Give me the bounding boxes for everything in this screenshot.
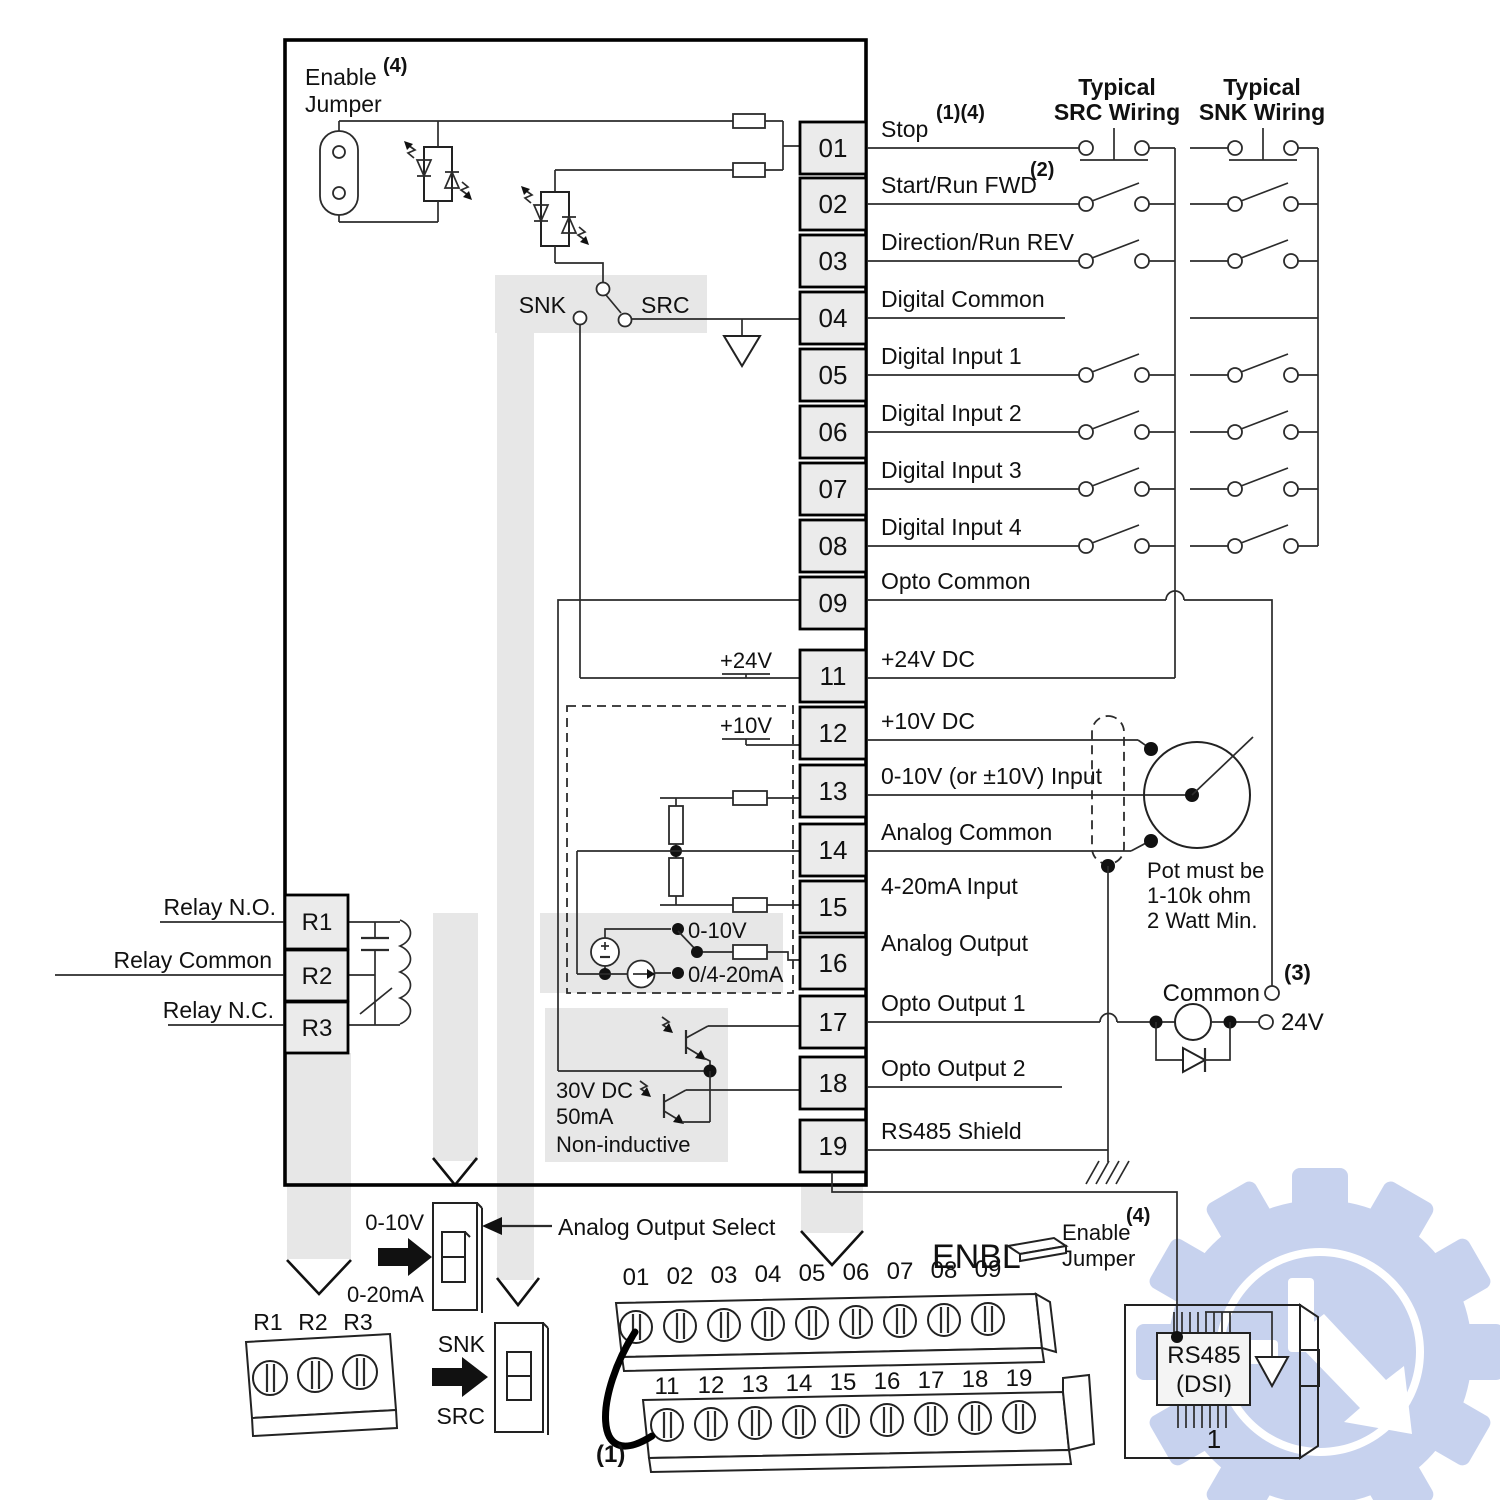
footnote-ref: (4) [383, 55, 407, 77]
opto-spec-line1: 30V DC [556, 1078, 633, 1103]
resistor-icon [669, 858, 683, 896]
terminal-number: 04 [819, 303, 848, 333]
terminal-label: Digital Input 1 [881, 343, 1022, 369]
terminal-label: Stop [881, 116, 928, 142]
terminal-number: 09 [819, 588, 848, 618]
strip-number: 17 [918, 1367, 945, 1394]
resistor-icon [733, 898, 767, 912]
enbl-jumper-callout: ENBL Enable Jumper (4) [932, 1205, 1150, 1276]
sw-0-10v-label: 0-10V [365, 1210, 424, 1235]
snk-position-label: SNK [519, 292, 567, 318]
24v-terminal-label: 24V [1281, 1009, 1324, 1036]
relay-terminal-r3: R3 [302, 1015, 333, 1042]
resistor-icon [733, 945, 767, 959]
terminal-label: Start/Run FWD [881, 172, 1037, 198]
terminal-labels: Stop (1)(4) Start/Run FWD (2) Direction/… [881, 102, 1103, 1144]
terminal-number: 05 [819, 360, 848, 390]
strip-number: 07 [887, 1258, 914, 1285]
drive-control-wiring-diagram: 01 02 03 04 05 06 07 08 09 11 12 13 14 1… [0, 0, 1500, 1500]
terminal-number: 17 [819, 1007, 848, 1037]
terminal-label: Opto Output 2 [881, 1055, 1025, 1081]
terminal-number: 02 [819, 189, 848, 219]
src-position-label: SRC [641, 292, 690, 318]
load-icon [1175, 1004, 1211, 1040]
terminal-number: 11 [820, 661, 847, 691]
terminal-number: 06 [819, 417, 848, 447]
relay-section: R1 R2 R3 Relay N.O. Relay Common Relay N… [55, 894, 348, 1053]
terminal-label: RS485 Shield [881, 1118, 1022, 1144]
r2-label: R2 [298, 1309, 327, 1335]
src-column-title-line1: Typical [1078, 74, 1156, 100]
src-column-title-line2: SRC Wiring [1054, 99, 1180, 125]
arrow-right-icon [378, 1238, 432, 1276]
strip-number: 19 [1006, 1365, 1033, 1392]
resistor-icon [733, 163, 765, 177]
analog-output-select-label: Analog Output Select [558, 1214, 776, 1240]
terminal-label: +24V DC [881, 646, 975, 672]
snk-column-title-line2: SNK Wiring [1199, 99, 1325, 125]
footnote-ref: (2) [1030, 159, 1054, 181]
terminal-label: +10V DC [881, 708, 975, 734]
strip-number: 11 [655, 1373, 680, 1400]
strip-number: 01 [623, 1264, 650, 1291]
strip-number: 02 [667, 1263, 694, 1290]
terminal-label: Opto Output 1 [881, 990, 1025, 1016]
chevron-down-icon [497, 1278, 539, 1305]
pot-note-line2: 1-10k ohm [1147, 883, 1251, 908]
enable-jumper-label-line1: Enable [305, 64, 377, 90]
r1-label: R1 [253, 1309, 282, 1335]
pot-note-line1: Pot must be [1147, 858, 1264, 883]
pot-note-line3: 2 Watt Min. [1147, 908, 1257, 933]
arrow-left-icon [482, 1217, 502, 1235]
terminal-block-column: 01 02 03 04 05 06 07 08 09 11 12 13 14 1… [800, 122, 866, 1172]
terminal-label: Digital Input 2 [881, 400, 1022, 426]
switch-row-snk [1190, 183, 1318, 553]
footnote-ref: (1)(4) [936, 102, 985, 124]
terminal-label: Digital Input 3 [881, 457, 1022, 483]
select-0-4-20ma-label: 0/4-20mA [688, 962, 784, 987]
optocoupler-icon [521, 170, 589, 263]
terminal-number: 18 [819, 1068, 848, 1098]
footnote-ref: (1) [596, 1441, 625, 1468]
terminal-number: 13 [819, 776, 848, 806]
wiring-diagram-page: 01 02 03 04 05 06 07 08 09 11 12 13 14 1… [0, 0, 1500, 1500]
terminal-label: Analog Output [881, 930, 1029, 956]
strip-number: 14 [786, 1370, 813, 1397]
rs485-label-line1: RS485 [1167, 1342, 1240, 1369]
resistor-icon [669, 806, 683, 844]
shaded-callout-bands [287, 275, 863, 1280]
r3-label: R3 [343, 1309, 372, 1335]
v10-tap-label: +10V [720, 713, 772, 738]
relay-contact-internals [348, 920, 411, 1025]
relay-terminal-block-drawing: R1 R2 R3 [246, 1309, 397, 1436]
terminal-strip-11-19-drawing: 11 12 13 14 15 16 17 18 19 [643, 1365, 1094, 1472]
footnote-ref: (4) [1126, 1205, 1150, 1227]
sw-0-20ma-label: 0-20mA [347, 1282, 424, 1307]
screw-terminal-icon [253, 1355, 377, 1395]
ground-icon [724, 319, 760, 366]
terminal-number: 19 [819, 1131, 848, 1161]
v24-tap-label: +24V [720, 648, 772, 673]
terminal-label: Digital Common [881, 286, 1045, 312]
opto-spec-line2: 50mA [556, 1104, 614, 1129]
voltage-source-icon [591, 938, 619, 966]
arrow-right-icon [432, 1357, 488, 1397]
resistor-icon [733, 114, 765, 128]
stop-pushbutton-snk [1190, 128, 1318, 160]
strip-number: 04 [755, 1261, 782, 1288]
terminal-number: 14 [819, 835, 848, 865]
current-source-icon [628, 961, 656, 988]
rs485-pin-label: 1 [1207, 1424, 1221, 1454]
cable-shield-dashed-icon [1092, 716, 1124, 864]
relay-common-label: Relay Common [114, 947, 273, 973]
enable-label-line1: Enable [1062, 1220, 1131, 1245]
ground-icon [1086, 1161, 1129, 1184]
strip-number: 12 [698, 1372, 725, 1399]
terminal-number: 16 [819, 948, 848, 978]
terminal-number: 12 [819, 718, 848, 748]
chevron-down-icon [287, 1260, 351, 1294]
relay-terminal-r1: R1 [302, 909, 333, 936]
terminal-label: Digital Input 4 [881, 514, 1022, 540]
opto-spec-line3: Non-inductive [556, 1132, 691, 1157]
enbl-label: ENBL [932, 1238, 1021, 1276]
terminal-label: Direction/Run REV [881, 229, 1075, 255]
strip-number: 03 [711, 1262, 738, 1289]
relay-nc-label: Relay N.C. [163, 997, 274, 1023]
terminal-number: 03 [819, 246, 848, 276]
terminal-number: 07 [819, 474, 848, 504]
snk-column-title-line1: Typical [1223, 74, 1301, 100]
enable-jumper-icon [320, 131, 358, 215]
relay-no-label: Relay N.O. [164, 894, 276, 920]
optocoupler-icon [404, 121, 472, 222]
snk-side-label: SNK [438, 1331, 486, 1357]
footnote-ref: (3) [1284, 960, 1311, 985]
terminal-number: 01 [819, 133, 848, 163]
strip-number: 15 [830, 1369, 857, 1396]
strip-number: 05 [799, 1260, 826, 1287]
terminal-label: Analog Common [881, 819, 1052, 845]
strip-number: 18 [962, 1366, 989, 1393]
select-0-10v-label: 0-10V [688, 918, 747, 943]
strip-number: 06 [843, 1259, 870, 1286]
terminal-label: 0-10V (or ±10V) Input [881, 763, 1103, 789]
analog-output-select-switch-drawing: 0-10V 0-20mA Analog Output Select [347, 1203, 776, 1313]
terminal-label: Opto Common [881, 568, 1031, 594]
chevron-down-icon [433, 1158, 477, 1185]
diode-icon [1183, 1048, 1205, 1072]
terminal-number: 08 [819, 531, 848, 561]
common-terminal-label: Common [1163, 980, 1260, 1007]
strip-number: 13 [742, 1371, 769, 1398]
relay-coil-icon [400, 920, 411, 1024]
terminal-label: 4-20mA Input [881, 873, 1018, 899]
terminal-number: 15 [819, 892, 848, 922]
src-side-label: SRC [436, 1403, 485, 1429]
enable-jumper-label-line2: Jumper [305, 91, 382, 117]
enable-label-line2: Jumper [1062, 1246, 1135, 1271]
relay-terminal-r2: R2 [302, 963, 333, 990]
strip-number: 16 [874, 1368, 901, 1395]
snk-src-switch-drawing: SNK SRC [432, 1323, 548, 1435]
rs485-label-line2: (DSI) [1176, 1371, 1232, 1398]
resistor-icon [733, 791, 767, 805]
